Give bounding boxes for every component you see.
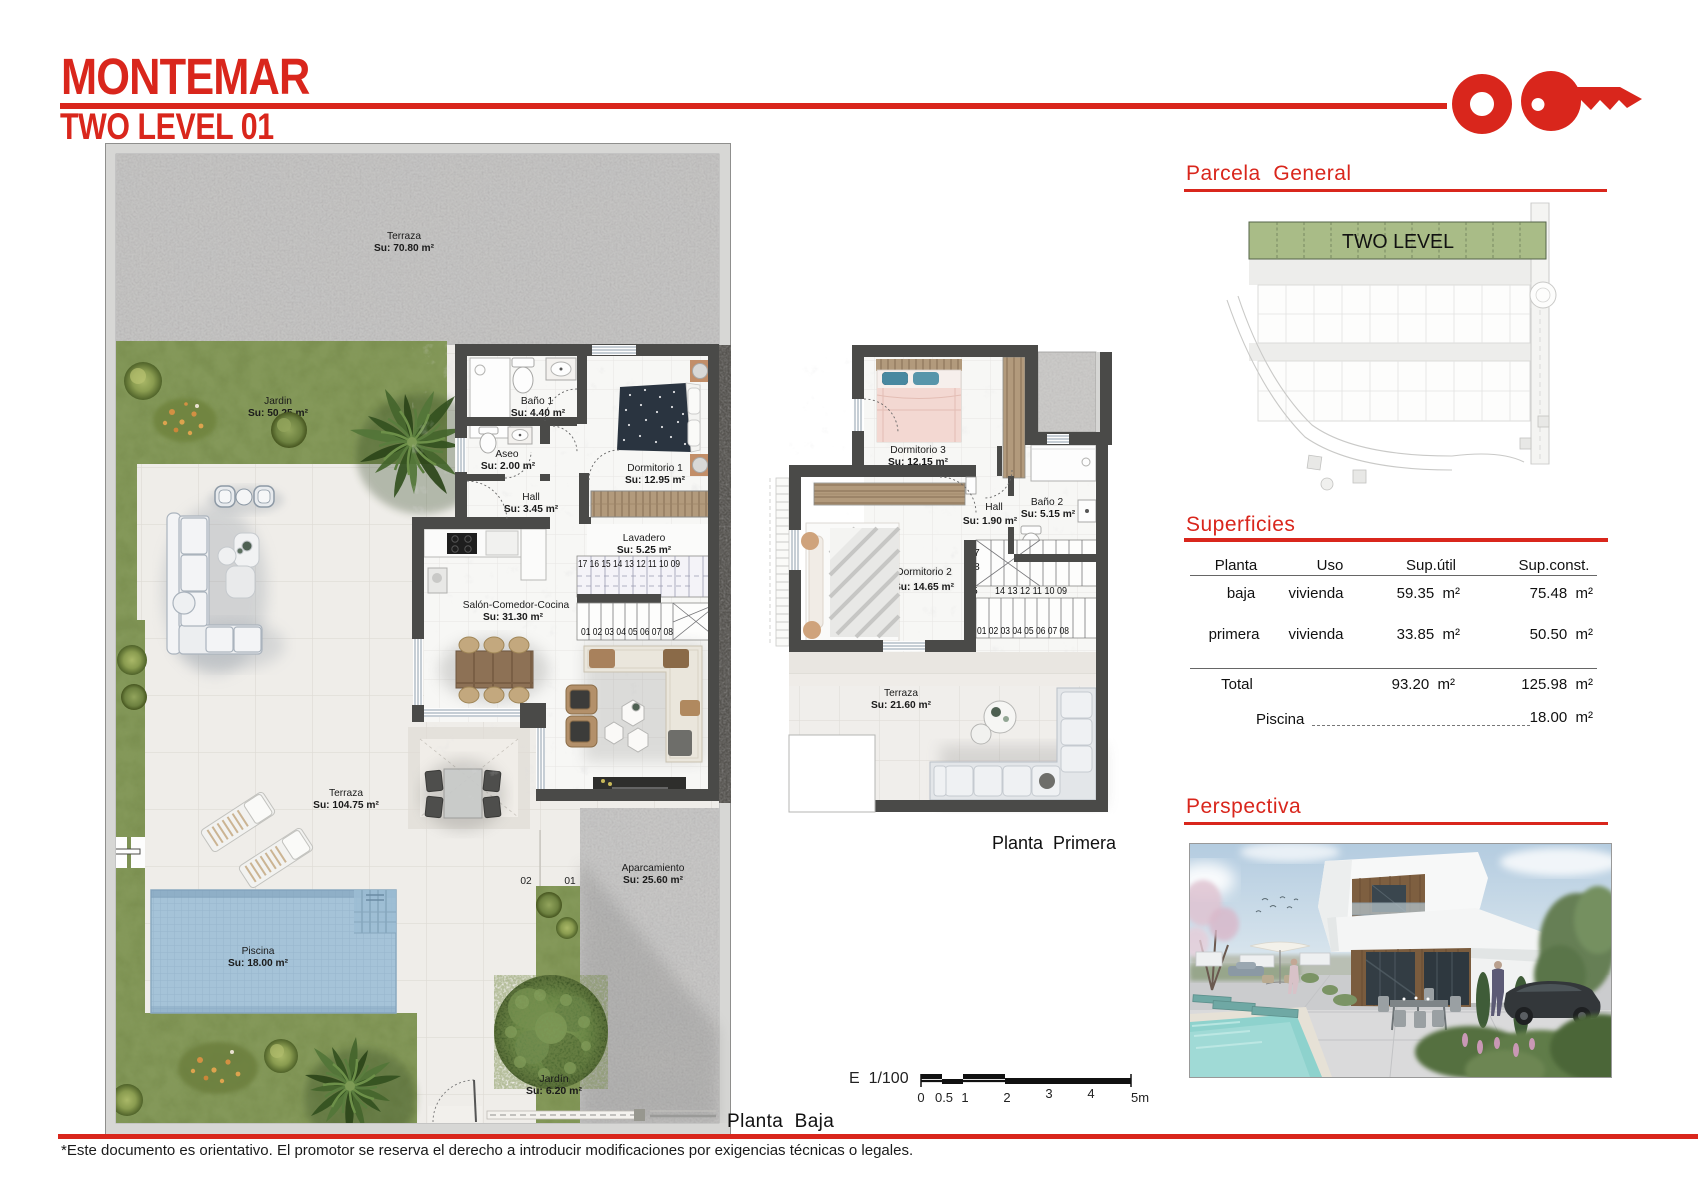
svg-text:Dormitorio 2: Dormitorio 2 [896,567,952,578]
svg-text:Piscina: Piscina [242,946,275,957]
svg-text:Baño 1: Baño 1 [521,396,554,407]
svg-text:Aseo: Aseo [495,449,519,460]
svg-text:Su: 70.80 m²: Su: 70.80 m² [374,243,435,254]
svg-text:Terraza: Terraza [387,231,421,242]
svg-text:Dormitorio 3: Dormitorio 3 [890,445,946,456]
svg-text:Aparcamiento: Aparcamiento [622,863,685,874]
svg-text:Hall: Hall [985,502,1003,513]
svg-text:Baño 2: Baño 2 [1031,497,1064,508]
svg-text:Hall: Hall [522,492,540,503]
svg-text:Lavadero: Lavadero [623,533,666,544]
svg-text:01: 01 [564,876,576,887]
svg-text:Terraza: Terraza [884,688,918,699]
svg-text:Su: 6.20 m²: Su: 6.20 m² [526,1085,583,1097]
svg-text:Su: 2.00 m²: Su: 2.00 m² [481,461,536,472]
svg-text:Su: 12.95 m²: Su: 12.95 m² [625,475,686,486]
svg-text:01 02 03 04 05 06 07 08: 01 02 03 04 05 06 07 08 [977,625,1069,637]
svg-text:17 16 15 14 13 12 11 10 09: 17 16 15 14 13 12 11 10 09 [578,558,680,570]
svg-text:Jardín: Jardín [539,1073,568,1085]
svg-text:Terraza: Terraza [329,788,363,799]
svg-text:Salón-Comedor-Cocina: Salón-Comedor-Cocina [463,600,570,611]
svg-text:Su: 3.45 m²: Su: 3.45 m² [504,504,559,515]
svg-text:01 02 03 04 05 06 07 08: 01 02 03 04 05 06 07 08 [581,626,673,638]
svg-text:Su: 21.60 m²: Su: 21.60 m² [871,700,932,711]
svg-text:Su: 25.60 m²: Su: 25.60 m² [623,875,684,886]
svg-text:Su: 104.75 m²: Su: 104.75 m² [313,800,379,811]
svg-text:02: 02 [520,876,532,887]
svg-text:Su: 1.90 m²: Su: 1.90 m² [963,516,1018,527]
svg-text:14 13 12 11 10 09: 14 13 12 11 10 09 [995,585,1067,597]
svg-text:Su: 14.65 m²: Su: 14.65 m² [894,582,955,593]
svg-text:Dormitorio 1: Dormitorio 1 [627,463,683,474]
svg-text:Su: 18.00 m²: Su: 18.00 m² [228,958,289,969]
svg-text:Jardin: Jardin [264,396,292,407]
svg-text:Su: 5.25 m²: Su: 5.25 m² [617,545,672,556]
svg-text:Su: 5.15 m²: Su: 5.15 m² [1021,509,1076,520]
svg-text:TWO LEVEL: TWO LEVEL [1342,231,1454,253]
svg-text:Su: 31.30 m²: Su: 31.30 m² [483,612,544,623]
